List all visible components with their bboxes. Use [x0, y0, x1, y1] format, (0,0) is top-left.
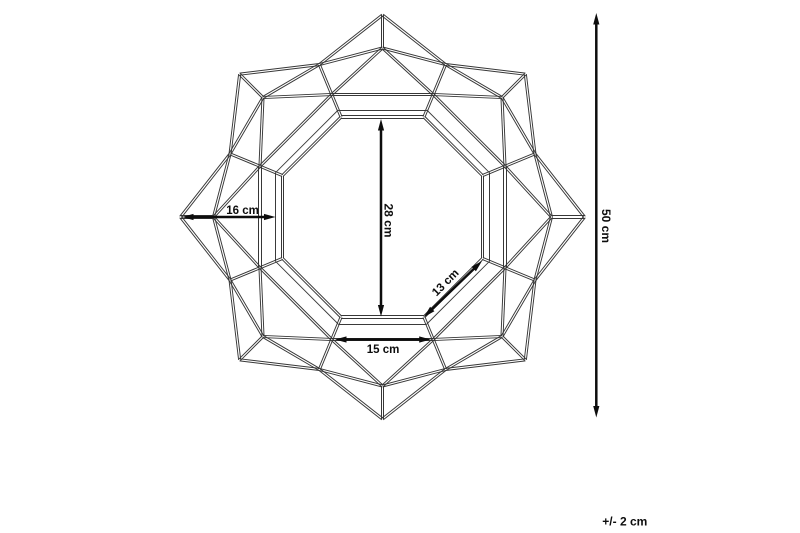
svg-text:28 cm: 28 cm: [382, 203, 396, 237]
svg-text:50 cm: 50 cm: [599, 209, 613, 243]
svg-text:15 cm: 15 cm: [367, 344, 400, 356]
svg-text:16 cm: 16 cm: [226, 205, 259, 217]
svg-text:+/- 2 cm: +/- 2 cm: [602, 515, 647, 529]
